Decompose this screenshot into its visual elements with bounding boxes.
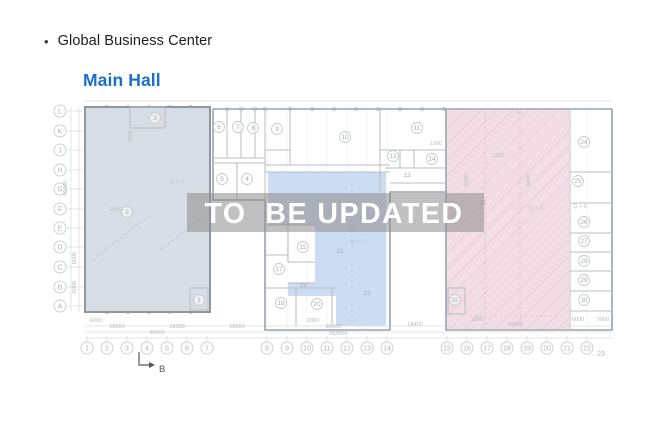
room-number: 29 bbox=[580, 277, 588, 284]
col-axis-label: 8 bbox=[265, 345, 269, 352]
room-number: 28 bbox=[580, 258, 588, 265]
room-number: 5 bbox=[220, 176, 224, 183]
floor-plan: LKJHGFEDCBA12345678910111213141516171819… bbox=[0, 0, 660, 440]
plan-note: Q = 3 bbox=[170, 179, 184, 185]
row-axis-label: A bbox=[58, 303, 63, 310]
row-axis-label: F bbox=[58, 206, 62, 213]
col-axis-label: 19 bbox=[523, 345, 531, 352]
col-axis-label: 5 bbox=[165, 345, 169, 352]
room-number: 13 bbox=[403, 172, 411, 179]
col-axis-label: 14 bbox=[383, 345, 391, 352]
section-marker-label: B bbox=[159, 364, 165, 375]
room-number: 15 bbox=[299, 244, 307, 251]
dimension-text: 2000 bbox=[307, 318, 319, 324]
plan-note: 2000 bbox=[110, 207, 122, 213]
row-axis-label: J bbox=[58, 147, 62, 154]
room-number: 26 bbox=[580, 219, 588, 226]
room-number: 21 bbox=[336, 248, 344, 255]
dimension-text: 18400 bbox=[407, 322, 423, 328]
row-axis-label: C bbox=[57, 264, 62, 271]
col-axis-label: 16 bbox=[463, 345, 471, 352]
dimension-text: 36000 bbox=[325, 324, 341, 330]
col-axis-label: 2 bbox=[105, 345, 109, 352]
dimension-text: 36000 bbox=[149, 330, 165, 336]
col-axis-label: 21 bbox=[563, 345, 571, 352]
col-axis-label: 9 bbox=[285, 345, 289, 352]
watermark: TO BE UPDATED bbox=[187, 193, 484, 232]
col-axis-label: 7 bbox=[205, 345, 209, 352]
dimension-text: 6000 bbox=[90, 318, 102, 324]
col-axis-label: 1 bbox=[85, 345, 89, 352]
room-number: 24 bbox=[580, 139, 588, 146]
plan-note: Q = 5 bbox=[573, 204, 587, 210]
dimension-text: 18000 bbox=[109, 324, 125, 330]
room-number: 32 bbox=[451, 297, 459, 304]
room-number: 3 bbox=[153, 115, 157, 122]
col-axis-label: 13 bbox=[363, 345, 371, 352]
col-axis-label: 15 bbox=[443, 345, 451, 352]
col-axis-label: 10 bbox=[303, 345, 311, 352]
room-number: 7 bbox=[236, 124, 240, 131]
row-axis-label: B bbox=[58, 284, 63, 291]
dimension-text: 45000 bbox=[507, 322, 523, 328]
room-number: 14 bbox=[428, 156, 436, 163]
dimension-text: 60000 bbox=[63, 180, 69, 196]
room-number: 25 bbox=[574, 178, 582, 185]
plan-note: 3000 bbox=[128, 130, 134, 142]
plan-note: Q = 3 bbox=[350, 239, 364, 245]
dimension-text: 18000 bbox=[169, 324, 185, 330]
room-number: 20 bbox=[313, 301, 321, 308]
plan-note: 6000 bbox=[526, 174, 532, 186]
room-number: 2 bbox=[125, 209, 129, 216]
room-number: 4 bbox=[245, 176, 249, 183]
row-axis-label: G bbox=[57, 186, 62, 193]
row-axis-label: K bbox=[58, 128, 63, 135]
dimension-text: 18000 bbox=[229, 324, 245, 330]
room-number: 19 bbox=[299, 282, 307, 289]
room-number: 10 bbox=[341, 134, 349, 141]
room-number: 30 bbox=[580, 297, 588, 304]
room-number: 22 bbox=[363, 290, 371, 297]
dimension-text: 1000 bbox=[471, 317, 483, 323]
col-axis-label: 18 bbox=[503, 345, 511, 352]
room-number: 9 bbox=[275, 126, 279, 133]
dimension-text: 153669 bbox=[329, 331, 348, 337]
room-number: 18 bbox=[277, 300, 285, 307]
col-axis-label: 17 bbox=[483, 345, 491, 352]
dimension-text: 3000 bbox=[597, 317, 609, 323]
col-axis-label: 6 bbox=[185, 345, 189, 352]
watermark-text: TO BE UPDATED bbox=[204, 198, 463, 230]
dimension-text: 6000 bbox=[72, 252, 78, 264]
room-number: 1 bbox=[197, 297, 201, 304]
section-marker: B bbox=[139, 352, 165, 375]
room-number: 11 bbox=[414, 125, 421, 132]
plan-note: 1900 bbox=[492, 153, 504, 159]
dimension-text: 6000 bbox=[572, 317, 584, 323]
plan-note: 1300 bbox=[430, 141, 442, 147]
room-number: 12 bbox=[389, 153, 397, 160]
room-number: 17 bbox=[275, 266, 283, 273]
row-axis-label: L bbox=[58, 108, 62, 115]
col-axis-label: 3 bbox=[125, 345, 129, 352]
plan-note: Q = 3 bbox=[529, 206, 543, 212]
plan-note: 6000 bbox=[464, 174, 470, 186]
col-axis-label: 12 bbox=[343, 345, 351, 352]
row-axis-label: H bbox=[57, 167, 62, 174]
row-axis-label: D bbox=[57, 244, 62, 251]
col-axis-label: 22 bbox=[583, 345, 591, 352]
col-axis-label: 4 bbox=[145, 345, 149, 352]
room-number: 27 bbox=[580, 238, 588, 245]
col-axis-label: 20 bbox=[543, 345, 551, 352]
room-number: 6 bbox=[217, 124, 221, 131]
plan-note: 23 bbox=[515, 109, 521, 115]
room-number: 8 bbox=[251, 125, 255, 132]
dimension-text: 6000 bbox=[72, 281, 78, 293]
col-axis-label: 11 bbox=[323, 345, 330, 352]
row-axis-label: E bbox=[58, 225, 63, 232]
col-axis-label: 23 bbox=[597, 351, 605, 358]
